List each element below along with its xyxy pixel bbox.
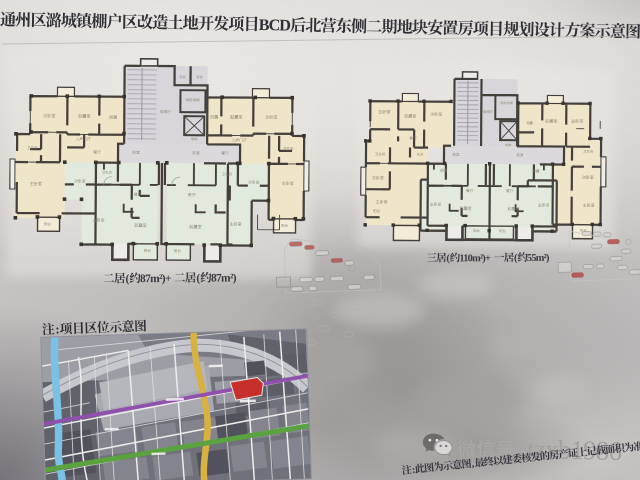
svg-text:(: ( (446, 253, 450, 264)
svg-text:110m²)+: 110m²)+ (459, 253, 491, 264)
svg-text:BCD: BCD (259, 16, 291, 35)
svg-text:,: , (471, 459, 475, 470)
svg-text:(: ( (514, 253, 518, 264)
svg-text:55m²): 55m²) (527, 253, 549, 264)
svg-text:87m²): 87m²) (211, 272, 237, 284)
svg-text::: : (411, 465, 415, 476)
svg-text::: : (55, 322, 59, 336)
svg-text:87m²)+: 87m²)+ (140, 273, 171, 285)
